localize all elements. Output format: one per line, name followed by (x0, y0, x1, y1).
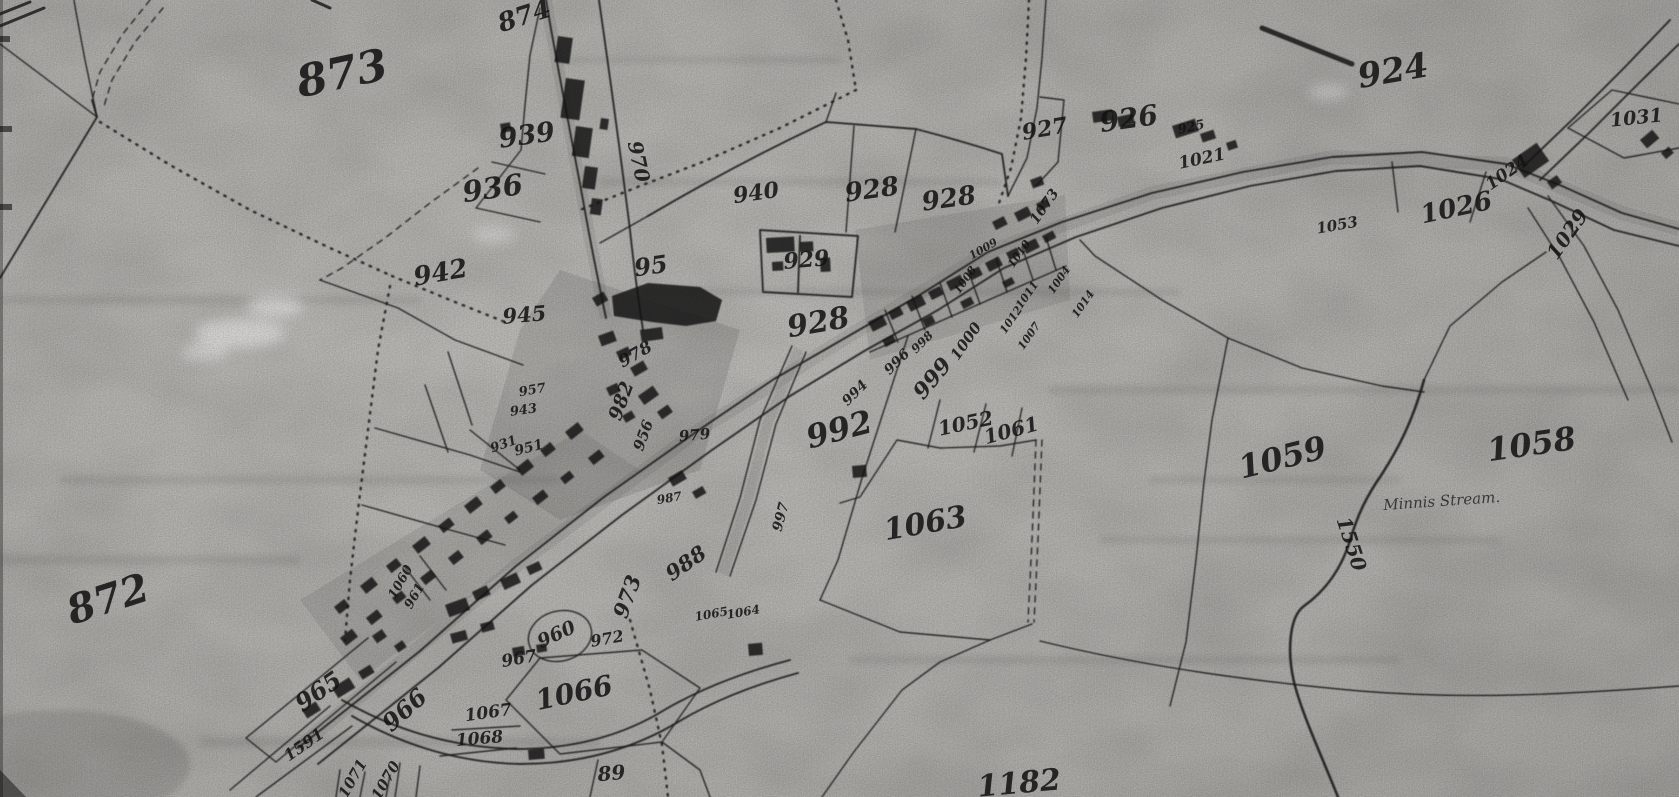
map-canvas: 8738749399369709429459789594092892892992… (0, 0, 1679, 797)
scan-grain (0, 0, 1679, 797)
map-scan-page: 8738749399369709429459789594092892892992… (0, 0, 1679, 797)
